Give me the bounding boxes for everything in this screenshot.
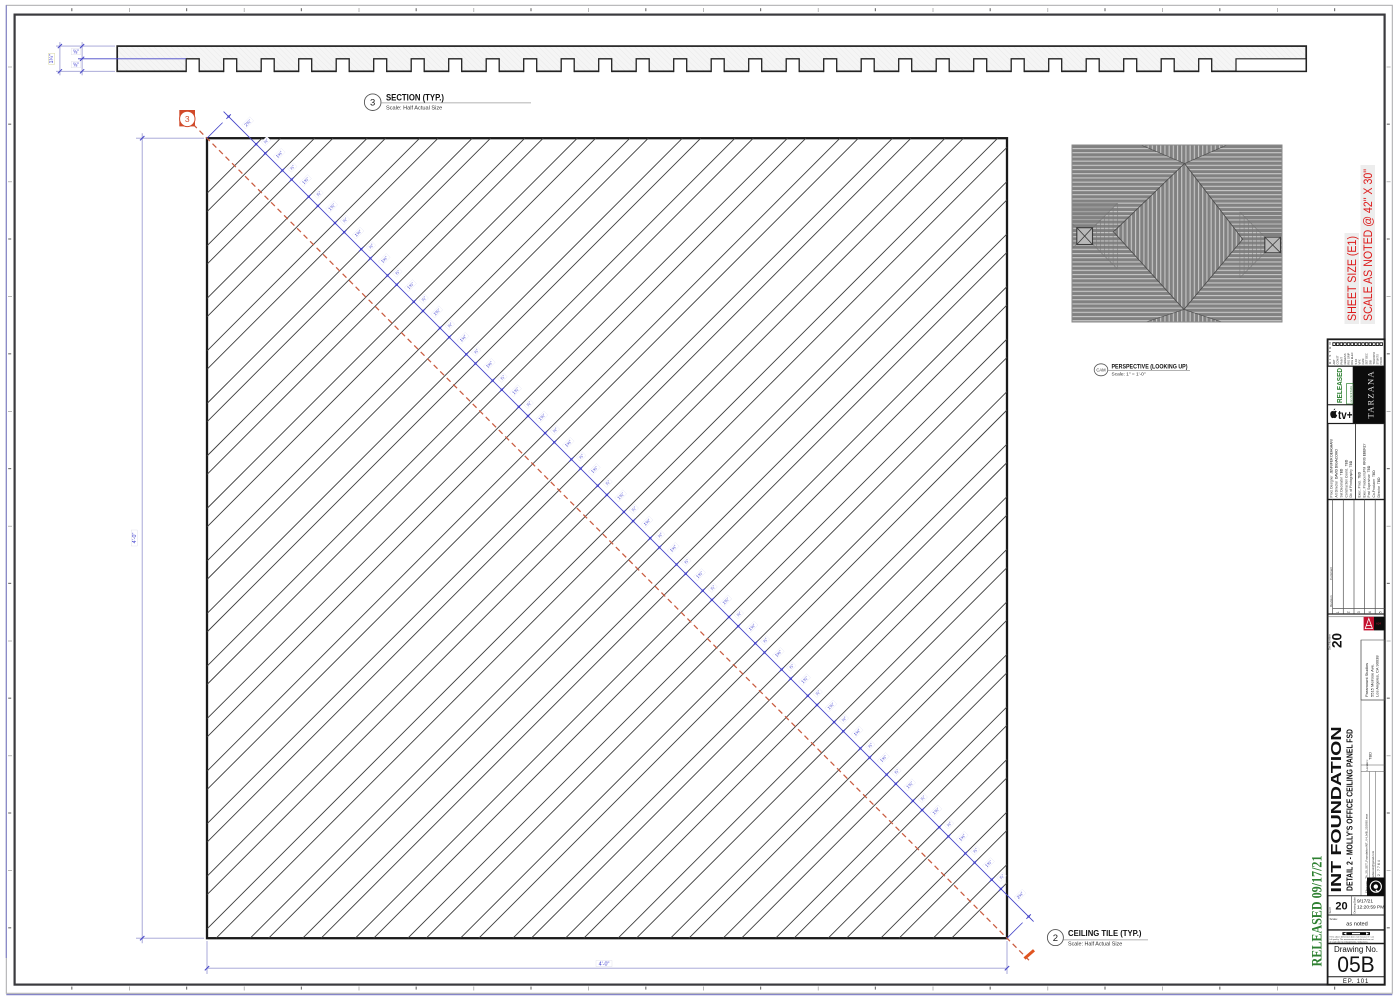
svg-text:Comment: Comment [1329, 567, 1333, 580]
svg-text:CAM: CAM [1096, 368, 1106, 373]
svg-text:Scale: 1" = 1'-0": Scale: 1" = 1'-0" [1112, 371, 1146, 377]
svg-text:05B: 05B [1337, 952, 1375, 977]
svg-text:RIG GRIP: RIG GRIP [1347, 353, 1351, 365]
svg-text:Director TBD: Director TBD [1377, 477, 1381, 498]
svg-text:SHEET SIZE (E1): SHEET SIZE (E1) [1345, 236, 1359, 321]
svg-text:3: 3 [1357, 611, 1361, 613]
svg-text:GREENS: GREENS [1343, 353, 1347, 364]
svg-text:PERSPECTIVE (LOOKING UP): PERSPECTIVE (LOOKING UP) [1112, 363, 1188, 370]
svg-text:4'-0": 4'-0" [599, 961, 610, 967]
svg-text:SET DEC: SET DEC [1365, 353, 1369, 364]
svg-text:CONST: CONST [1336, 355, 1340, 364]
svg-text:4: 4 [1368, 611, 1372, 613]
svg-text:Los Angeles, CA 90038: Los Angeles, CA 90038 [1375, 655, 1380, 697]
svg-text:2: 2 [1053, 933, 1058, 944]
svg-text:Scale:: Scale: [1330, 917, 1339, 921]
svg-text:CEILING TILE (TYP.): CEILING TILE (TYP.) [1068, 928, 1142, 938]
svg-text:as noted: as noted [1346, 922, 1367, 928]
svg-text:Exec. Producer/UPM KRIS EBERL: Exec. Producer/UPM KRIS EBERLY [1362, 443, 1366, 498]
svg-text:VFX: VFX [1357, 359, 1361, 364]
svg-text:on 9/17/21: on 9/17/21 [1349, 386, 1353, 403]
svg-text:20: 20 [1330, 633, 1345, 648]
svg-text:TRANSPO: TRANSPO [1372, 352, 1376, 365]
svg-text:EP. 101: EP. 101 [1343, 979, 1369, 985]
svg-text:Revision: Revision [1329, 595, 1333, 607]
svg-text:5515 Melrose Ave.: 5515 Melrose Ave. [1369, 664, 1374, 697]
svg-text:A24: A24 [1376, 622, 1381, 626]
svg-text:Prod. Designer JENNIFER DEHGH: Prod. Designer JENNIFER DEHGHANI [1330, 439, 1334, 497]
svg-text:⅝": ⅝" [73, 50, 79, 56]
svg-text:3: 3 [370, 98, 375, 109]
svg-text:DETAIL 2 - MOLLY'S OFFICE CEI: DETAIL 2 - MOLLY'S OFFICE CEILING PANEL … [1346, 729, 1355, 891]
svg-text:1¼": 1¼" [49, 54, 55, 63]
svg-text:12:20:59 PM: 12:20:59 PM [1357, 905, 1384, 911]
svg-text:Drawing Date: Drawing Date [1352, 897, 1356, 914]
svg-text:Exec. Prod. TBD: Exec. Prod. TBD [1357, 471, 1361, 497]
svg-text:Post Supervisor TBD: Post Supervisor TBD [1367, 465, 1371, 497]
svg-text:20: 20 [1335, 901, 1347, 913]
svg-text:S/B: S/B [1368, 360, 1372, 364]
svg-text:2: 2 [1347, 611, 1351, 613]
svg-text:PROD: PROD [1379, 357, 1383, 365]
svg-text:D I S T R O: D I S T R O [1328, 342, 1332, 364]
svg-text:⅝": ⅝" [73, 63, 79, 69]
svg-text:5: 5 [1379, 611, 1383, 613]
svg-text:9/17/21: 9/17/21 [1357, 899, 1373, 905]
svg-text:Scale: Half Actual Size: Scale: Half Actual Size [1068, 942, 1122, 948]
svg-text:S.FX: S.FX [1354, 358, 1358, 364]
svg-text:PAINT: PAINT [1339, 357, 1343, 365]
svg-text:RELEASED 09/17/21: RELEASED 09/17/21 [1309, 856, 1325, 967]
svg-text:Dir. of Photography TBD: Dir. of Photography TBD [1349, 460, 1353, 497]
svg-text:tv+: tv+ [1338, 408, 1353, 422]
svg-text:Scale: Half Actual Size: Scale: Half Actual Size [386, 105, 442, 111]
svg-text:Construction Coord. TBD: Construction Coord. TBD [1344, 459, 1348, 497]
svg-text:3: 3 [185, 114, 190, 124]
svg-text:Set #: Set # [1328, 907, 1332, 914]
svg-text:Set Decorator TBD: Set Decorator TBD [1339, 468, 1343, 497]
svg-text:TBD: TBD [1368, 752, 1373, 760]
svg-text:CAM: CAM [1361, 359, 1365, 365]
svg-text:INT FOUNDATION: INT FOUNDATION [1329, 727, 1345, 893]
svg-text:STUNTS: STUNTS [1376, 354, 1380, 365]
svg-text:4'-0": 4'-0" [132, 533, 138, 544]
svg-text:SECTION (TYP.): SECTION (TYP.) [386, 92, 444, 102]
svg-text:1: 1 [1336, 611, 1340, 613]
svg-text:RIG ELEC: RIG ELEC [1350, 352, 1354, 364]
svg-text:Art Director DAVID DIGIACOMO: Art Director DAVID DIGIACOMO [1335, 449, 1339, 498]
svg-text:TARZANA: TARZANA [1366, 371, 1376, 419]
svg-text:RELEASED: RELEASED [1337, 368, 1344, 403]
svg-text:ART: ART [1332, 359, 1336, 365]
svg-text:Paramount Studios: Paramount Studios [1364, 663, 1369, 697]
svg-text:SCALE AS NOTED @ 42" X 30": SCALE AS NOTED @ 42" X 30" [1361, 169, 1375, 321]
svg-text:Co-Producer TBD: Co-Producer TBD [1372, 470, 1376, 498]
svg-text:Location:: Location: [1365, 759, 1369, 771]
